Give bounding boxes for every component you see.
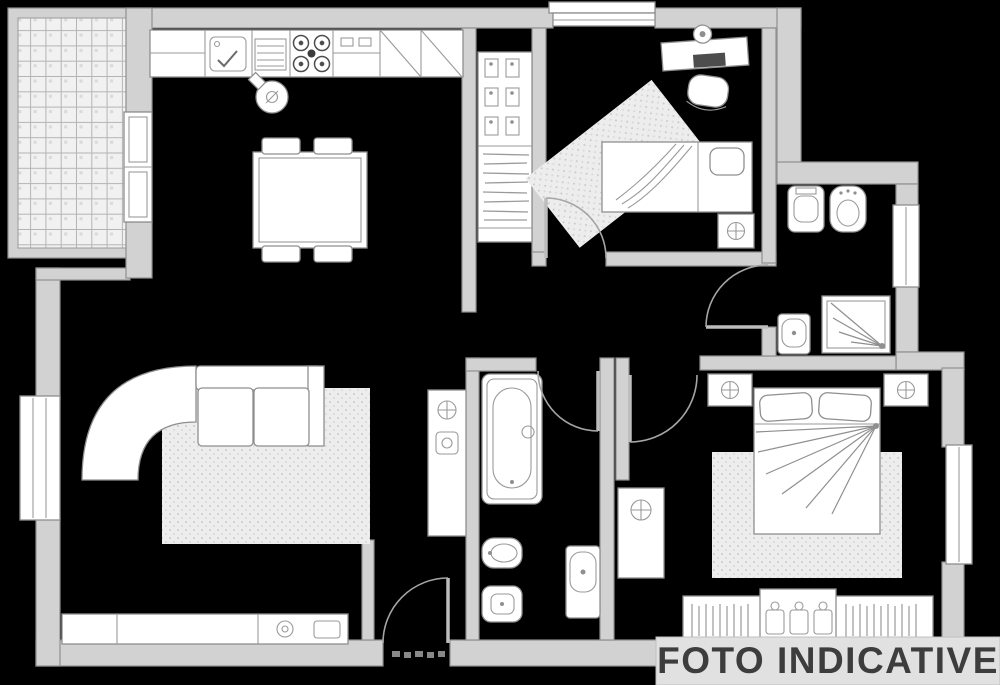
plant-shelf <box>428 390 466 536</box>
window-bathroom-right <box>893 205 919 287</box>
balcony-tile-floor <box>18 18 130 248</box>
pillow <box>818 392 872 422</box>
chair <box>262 138 300 154</box>
chair <box>314 246 352 262</box>
shower <box>822 296 890 353</box>
plant-icon <box>728 223 745 240</box>
chair <box>314 138 352 154</box>
single-bed <box>602 142 752 212</box>
nightstand-right <box>884 374 928 406</box>
double-bed <box>754 388 880 534</box>
watermark: FOTO INDICATIVE <box>656 637 1000 685</box>
balcony-door <box>124 112 152 222</box>
nightstand-left <box>708 374 752 406</box>
toilet <box>788 186 824 232</box>
plant-table <box>618 488 664 578</box>
balcony <box>8 8 140 258</box>
floor-plan-image: FOTO INDICATIVE <box>0 0 1000 685</box>
toilet <box>482 586 522 622</box>
hall-closet <box>478 52 532 242</box>
bathtub <box>482 374 542 504</box>
floor-plan-svg: FOTO INDICATIVE <box>0 0 1000 685</box>
washbasin <box>778 314 810 354</box>
window-left <box>20 396 60 520</box>
sideboard <box>62 614 348 644</box>
chair <box>262 246 300 262</box>
bidet <box>830 186 866 232</box>
pillow <box>710 148 744 175</box>
window-top <box>549 2 655 26</box>
bidet <box>482 538 522 568</box>
laptop-icon <box>693 53 726 68</box>
nightstand <box>718 214 754 248</box>
plant-icon <box>438 401 456 419</box>
dining-table <box>253 138 367 262</box>
pillow <box>759 392 813 422</box>
watermark-text: FOTO INDICATIVE <box>657 640 999 681</box>
washbasin <box>566 546 600 618</box>
window-master-bedroom <box>946 445 972 564</box>
